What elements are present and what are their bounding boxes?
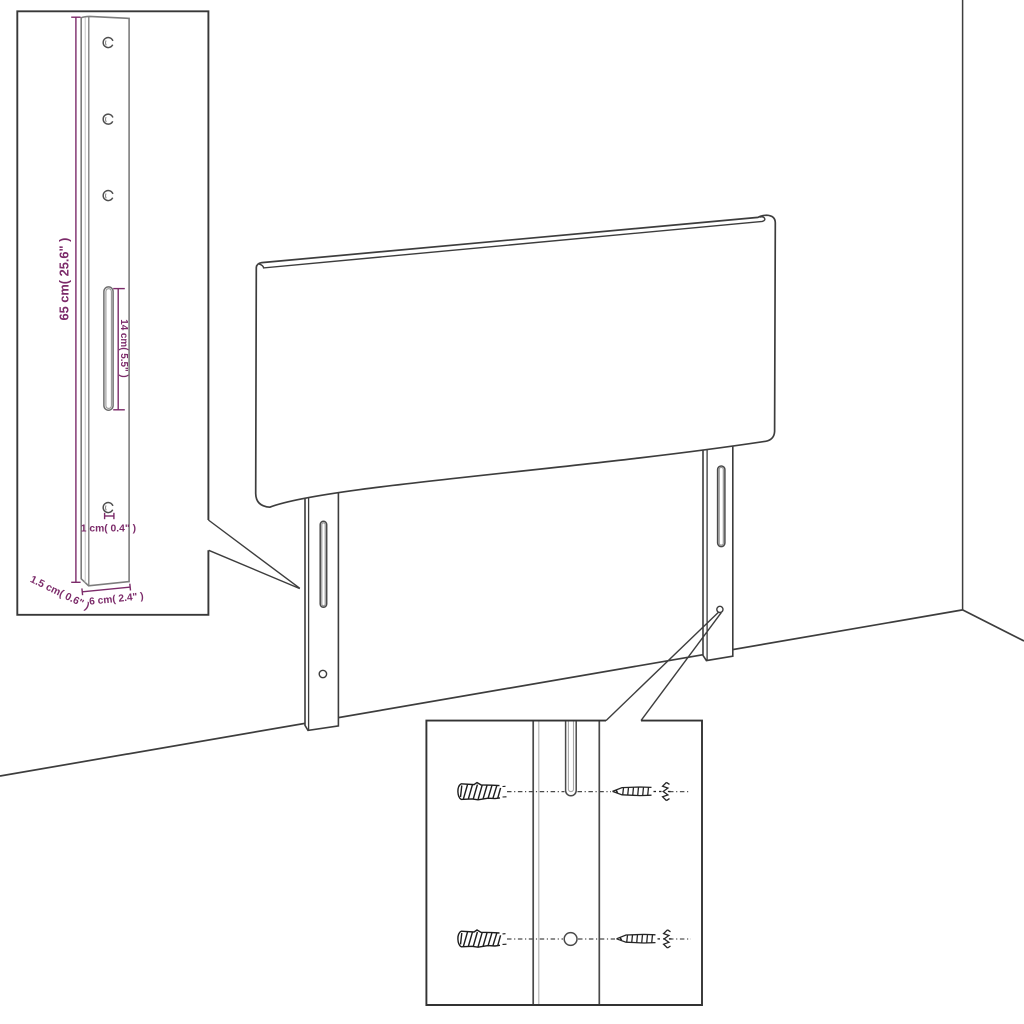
svg-text:1 cm( 0.4" ): 1 cm( 0.4" ) <box>81 524 136 535</box>
svg-text:6 cm( 2.4" ): 6 cm( 2.4" ) <box>89 591 145 608</box>
svg-text:65 cm( 25.6" ): 65 cm( 25.6" ) <box>56 238 71 321</box>
svg-text:14 cm( 5.5" ): 14 cm( 5.5" ) <box>118 319 129 377</box>
